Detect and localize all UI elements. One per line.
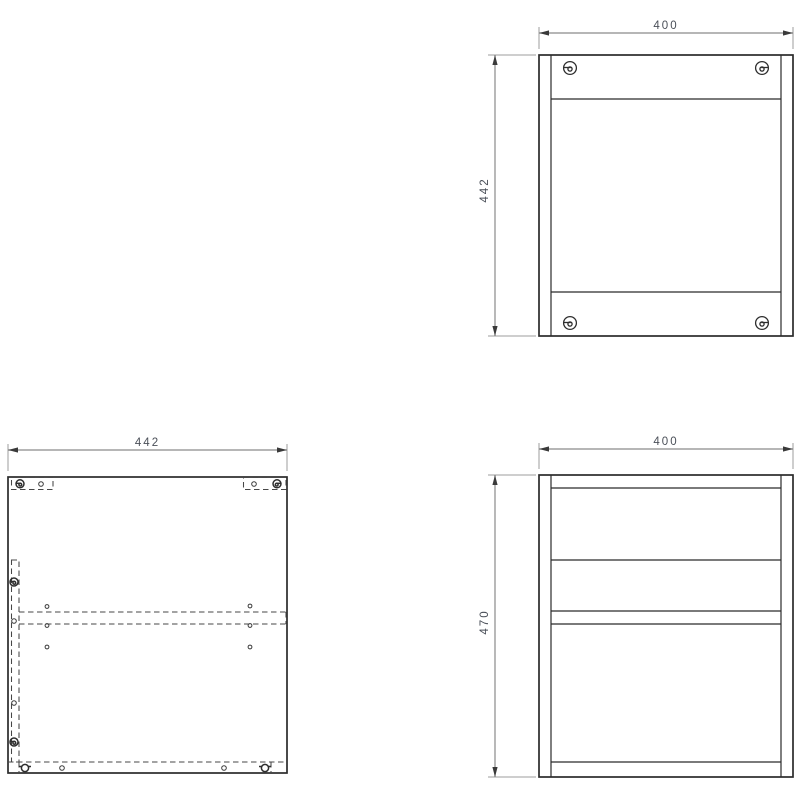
cam-fitting-icon: [16, 480, 24, 488]
back-height-dimension: 442: [479, 55, 536, 336]
cam-fitting-icon: [10, 738, 18, 746]
drill-hole-icon: [12, 701, 17, 706]
wing-dowel-icon: [259, 764, 271, 771]
side-width-label: 442: [135, 437, 160, 449]
cam-fitting-icon: [273, 480, 281, 488]
view-front: 400 470: [479, 436, 793, 777]
cam-screw-icon: [756, 317, 769, 330]
arrow-up-icon: [492, 475, 497, 485]
drill-hole-icon: [60, 766, 65, 771]
back-width-label: 400: [653, 20, 678, 32]
drill-hole-icon: [252, 482, 257, 487]
cam-screw-icon: [564, 317, 577, 330]
arrow-left-icon: [539, 446, 549, 451]
side-width-dimension: 442: [8, 437, 287, 471]
drill-hole-icon: [222, 766, 227, 771]
drill-hole-icon: [12, 619, 17, 624]
drill-hole-icon: [45, 645, 49, 649]
drill-hole-icon: [45, 605, 49, 609]
drill-hole-icon: [248, 604, 252, 608]
back-width-dimension: 400: [539, 20, 793, 49]
arrow-right-icon: [277, 447, 287, 452]
cam-fitting-icon: [10, 578, 18, 586]
cam-screw-icon: [756, 62, 769, 75]
front-outline: [539, 475, 793, 777]
arrow-down-icon: [492, 326, 497, 336]
cam-screw-icon: [564, 62, 577, 75]
drill-hole-icon: [248, 645, 252, 649]
back-height-label: 442: [479, 177, 491, 202]
front-height-label: 470: [479, 609, 491, 634]
hidden-front-rail: [12, 560, 20, 762]
front-height-dimension: 470: [479, 475, 536, 777]
view-side-panel: 442: [8, 437, 287, 773]
drill-hole-icon: [248, 624, 252, 628]
arrow-left-icon: [8, 447, 18, 452]
arrow-right-icon: [783, 446, 793, 451]
drawing-canvas: 400 442: [0, 0, 800, 800]
view-back-panel: 400 442: [479, 20, 793, 336]
front-width-label: 400: [653, 436, 678, 448]
wing-dowel-icon: [19, 764, 31, 771]
back-panel-outline: [539, 55, 793, 336]
arrow-up-icon: [492, 55, 497, 65]
arrow-right-icon: [783, 30, 793, 35]
arrow-down-icon: [492, 767, 497, 777]
arrow-left-icon: [539, 30, 549, 35]
drill-hole-icon: [39, 482, 44, 487]
side-panel-outline: [8, 477, 287, 773]
technical-drawing: 400 442: [0, 0, 800, 800]
front-width-dimension: 400: [539, 436, 793, 469]
